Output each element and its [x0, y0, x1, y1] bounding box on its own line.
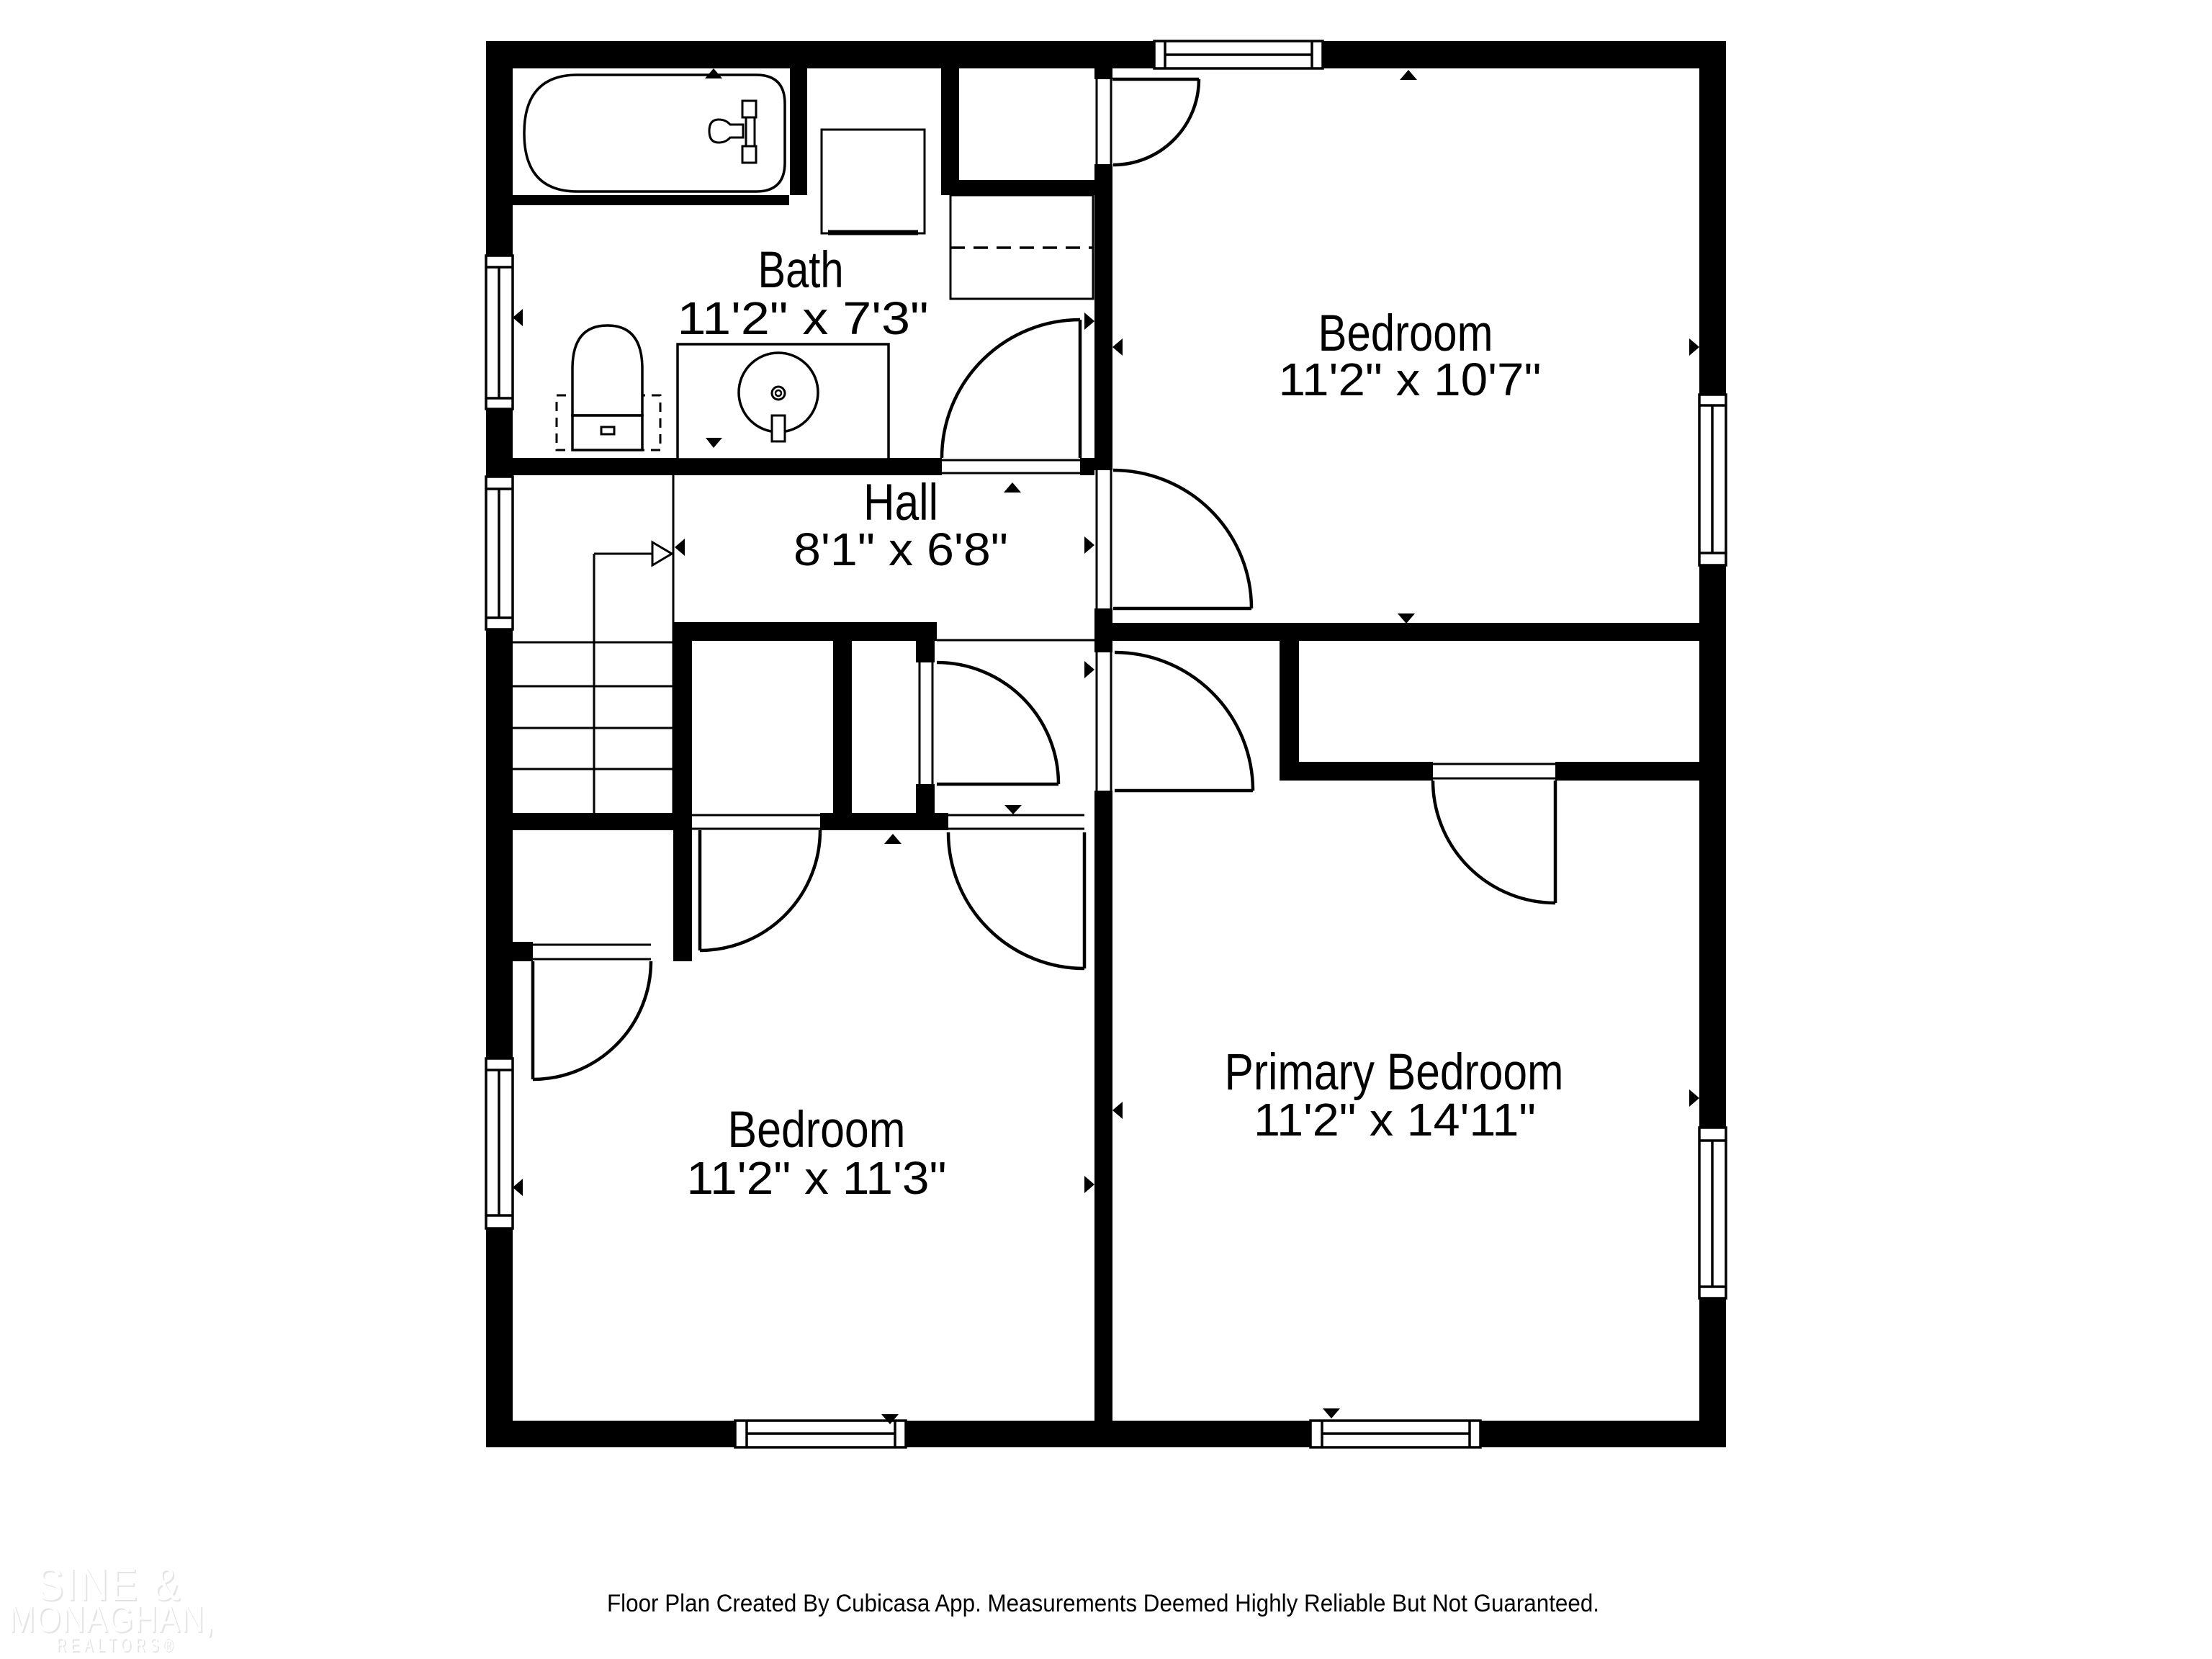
svg-text:Floor Plan Created By Cubicasa: Floor Plan Created By Cubicasa App. Meas…	[607, 1590, 1599, 1617]
svg-text:Bath: Bath	[758, 242, 844, 299]
svg-text:Primary Bedroom: Primary Bedroom	[1225, 1044, 1564, 1101]
svg-text:11'2" x 7'3": 11'2" x 7'3"	[678, 292, 929, 344]
svg-text:11'2" x 11'3": 11'2" x 11'3"	[687, 1152, 947, 1204]
svg-text:REALTORS®: REALTORS®	[56, 1634, 177, 1655]
svg-text:Bedroom: Bedroom	[728, 1102, 906, 1159]
svg-text:11'2" x 10'7": 11'2" x 10'7"	[1279, 354, 1542, 405]
svg-text:8'1" x 6'8": 8'1" x 6'8"	[793, 523, 1008, 575]
svg-text:11'2" x 14'11": 11'2" x 14'11"	[1254, 1094, 1536, 1146]
